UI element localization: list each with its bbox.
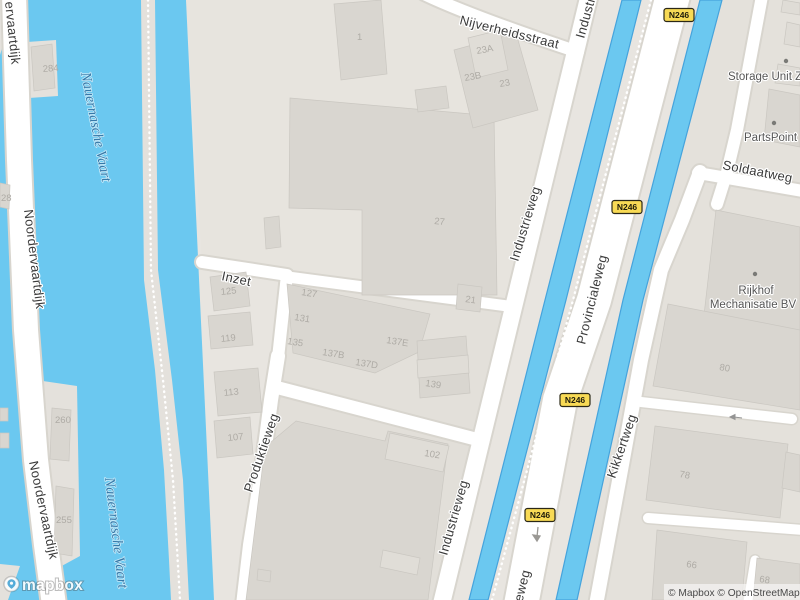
svg-text:N246: N246 bbox=[530, 510, 551, 520]
svg-text:23: 23 bbox=[499, 77, 511, 90]
svg-text:N246: N246 bbox=[617, 202, 638, 212]
svg-text:27: 27 bbox=[434, 216, 446, 228]
svg-text:125: 125 bbox=[220, 285, 237, 298]
svg-text:78: 78 bbox=[678, 469, 690, 482]
svg-text:© Mapbox © OpenStreetMap: © Mapbox © OpenStreetMap bbox=[668, 588, 800, 599]
svg-text:284: 284 bbox=[42, 63, 59, 75]
svg-text:260: 260 bbox=[55, 415, 71, 426]
svg-text:mapbox: mapbox bbox=[22, 577, 83, 594]
svg-text:107: 107 bbox=[227, 431, 244, 444]
svg-text:Rijkhof: Rijkhof bbox=[738, 285, 774, 297]
svg-text:N246: N246 bbox=[565, 395, 586, 405]
svg-text:PartsPoint: PartsPoint bbox=[744, 132, 798, 144]
svg-text:28: 28 bbox=[1, 193, 12, 204]
svg-text:255: 255 bbox=[56, 515, 72, 526]
svg-text:Mechanisatie BV: Mechanisatie BV bbox=[710, 299, 797, 311]
svg-text:21: 21 bbox=[465, 294, 477, 306]
svg-text:Storage Unit Z: Storage Unit Z bbox=[728, 71, 800, 83]
svg-text:N246: N246 bbox=[669, 10, 690, 20]
svg-text:1: 1 bbox=[357, 32, 362, 43]
svg-text:113: 113 bbox=[223, 386, 239, 399]
svg-text:66: 66 bbox=[686, 559, 698, 571]
svg-text:119: 119 bbox=[220, 332, 236, 345]
svg-text:80: 80 bbox=[718, 362, 730, 375]
